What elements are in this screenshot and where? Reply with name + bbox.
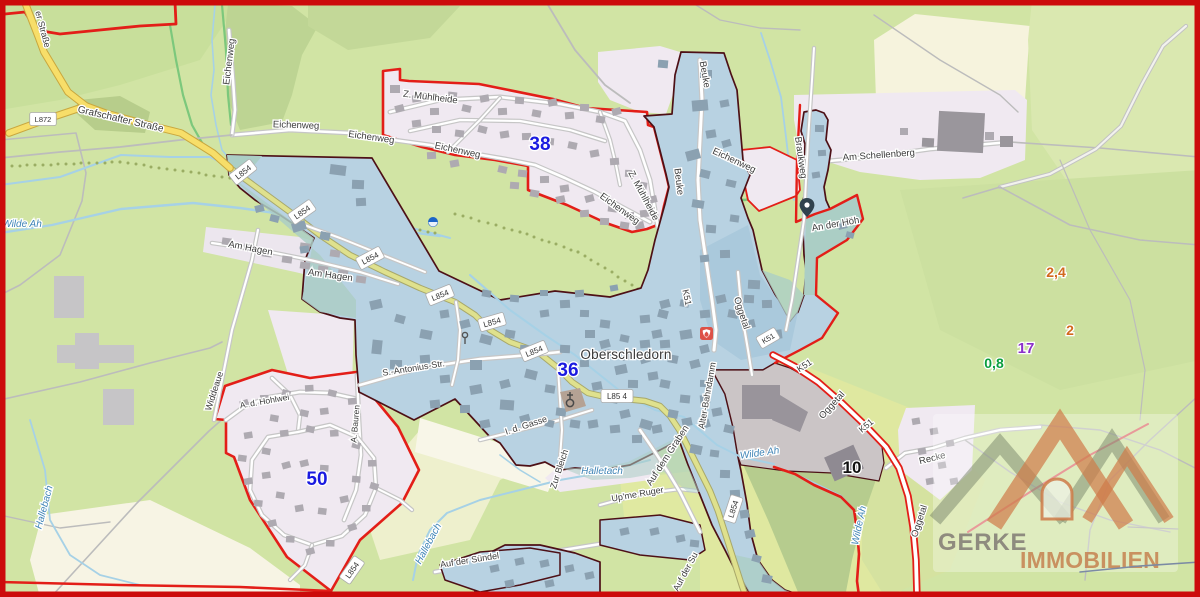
svg-text:10: 10 xyxy=(843,458,862,477)
svg-text:GERKE: GERKE xyxy=(938,529,1027,556)
svg-text:36: 36 xyxy=(557,360,578,381)
svg-text:IMMOBILIEN: IMMOBILIEN xyxy=(1020,547,1160,573)
svg-text:Eichenweg: Eichenweg xyxy=(273,119,320,132)
svg-text:L872: L872 xyxy=(35,115,52,124)
svg-text:2: 2 xyxy=(1066,322,1074,338)
svg-text:2,4: 2,4 xyxy=(1046,264,1066,280)
svg-text:Halletach: Halletach xyxy=(581,466,623,477)
svg-text:38: 38 xyxy=(529,134,550,155)
svg-text:L85 4: L85 4 xyxy=(607,392,628,401)
svg-text:17: 17 xyxy=(1018,340,1035,357)
svg-text:Oberschledorn: Oberschledorn xyxy=(580,347,671,362)
svg-text:50: 50 xyxy=(306,469,327,490)
svg-text:Wilde Ah: Wilde Ah xyxy=(2,219,42,230)
svg-text:0,8: 0,8 xyxy=(984,355,1004,371)
